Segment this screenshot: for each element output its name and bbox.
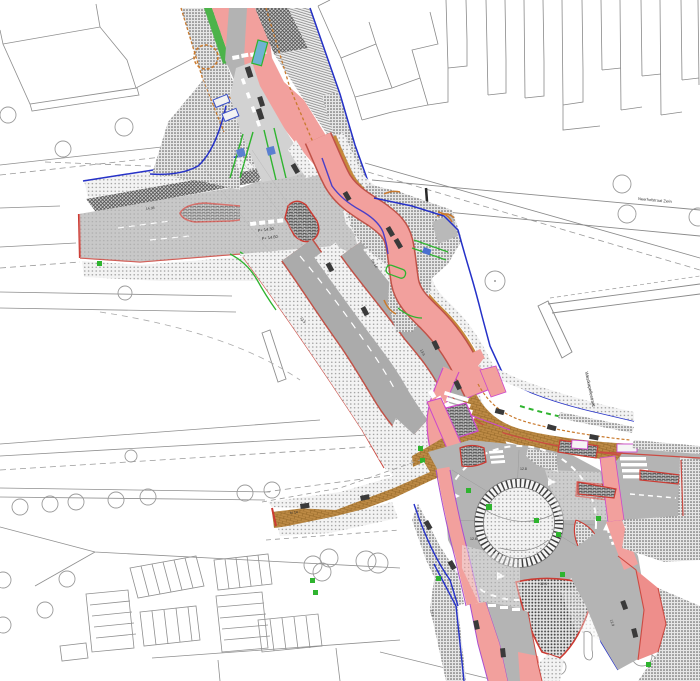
svg-text:12.8: 12.8 (520, 467, 527, 471)
svg-text:br 14: br 14 (290, 510, 298, 515)
svg-text:12.4: 12.4 (540, 582, 547, 586)
svg-text:12.6: 12.6 (470, 537, 477, 541)
